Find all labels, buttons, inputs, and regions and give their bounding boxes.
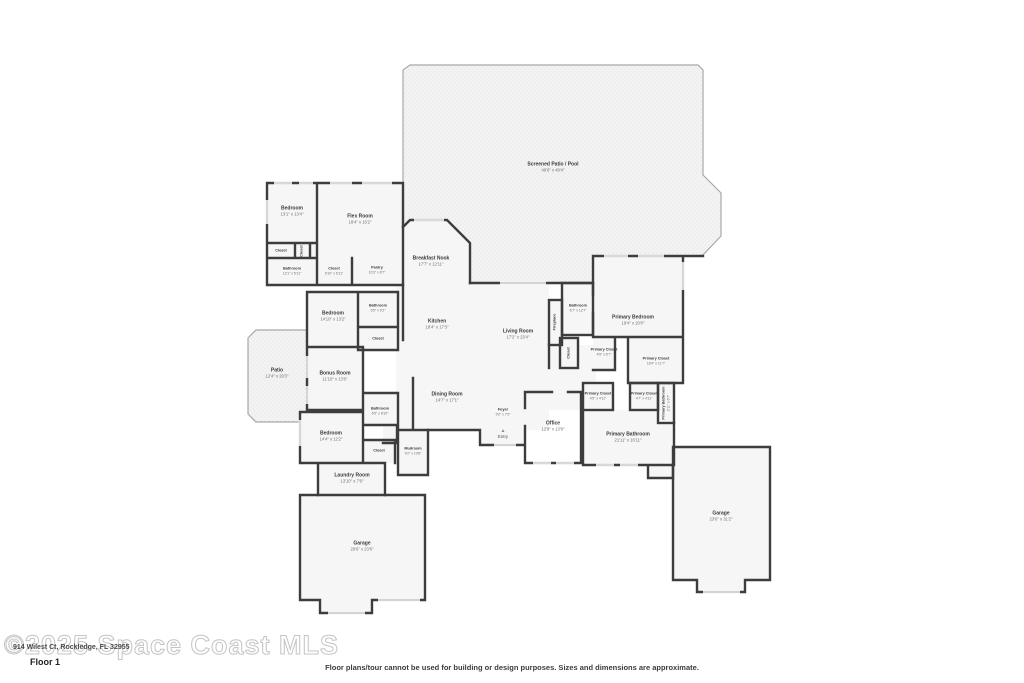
left-patio-area — [248, 330, 307, 422]
floorplan-drawing — [0, 0, 1024, 683]
entry-label: Entry — [498, 434, 508, 439]
property-address: 914 Wilest Ct, Rockledge, FL 32955 — [13, 644, 130, 651]
disclaimer-text: Floor plans/tour cannot be used for buil… — [0, 663, 1024, 672]
entry-marker: ▲ Entry — [498, 429, 508, 439]
floorplan-canvas: Screened Patio / Pool49'6" x 48'4" Bedro… — [0, 0, 1024, 683]
